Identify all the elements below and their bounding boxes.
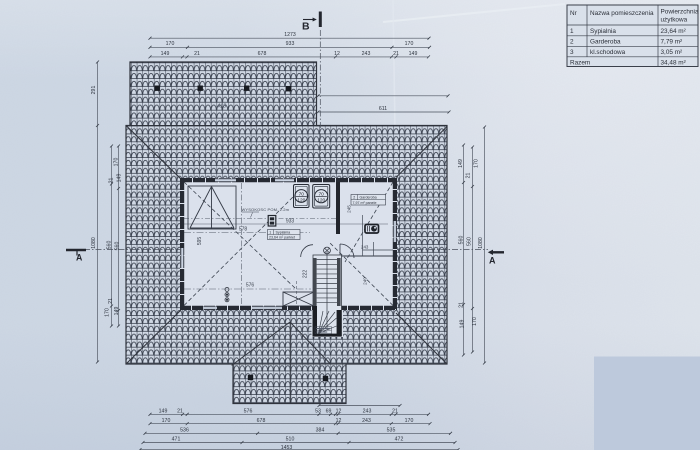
svg-text:933: 933 (286, 219, 295, 225)
svg-text:1453: 1453 (281, 445, 293, 450)
svg-text:291: 291 (91, 86, 97, 95)
svg-text:1080: 1080 (91, 237, 97, 249)
svg-text:1273: 1273 (284, 32, 296, 38)
svg-text:471: 471 (172, 437, 181, 443)
svg-text:149: 149 (409, 51, 418, 57)
svg-text:933: 933 (286, 41, 295, 47)
svg-text:149: 149 (458, 159, 464, 168)
svg-text:70: 70 (299, 191, 305, 197)
svg-text:149: 149 (114, 307, 120, 316)
svg-text:249: 249 (363, 277, 368, 285)
svg-text:A: A (76, 253, 83, 263)
svg-text:kl.schodowa: kl.schodowa (590, 49, 626, 56)
svg-text:23,64 m² parkiet: 23,64 m² parkiet (269, 236, 295, 240)
svg-text:3: 3 (570, 49, 574, 56)
svg-text:170: 170 (405, 41, 414, 47)
svg-text:WYSOKOSC POM. 2.2m: WYSOKOSC POM. 2.2m (242, 207, 290, 212)
svg-text:678: 678 (257, 418, 266, 424)
svg-text:34,48 m²: 34,48 m² (661, 59, 686, 66)
svg-text:418: 418 (217, 104, 227, 110)
svg-text:7,79 m²: 7,79 m² (661, 38, 683, 45)
svg-text:170: 170 (105, 308, 111, 317)
svg-text:678: 678 (258, 51, 267, 57)
svg-text:560: 560 (467, 237, 473, 246)
svg-text:7,97 m² panele: 7,97 m² panele (353, 201, 377, 205)
svg-text:12: 12 (334, 51, 340, 57)
svg-text:21: 21 (177, 409, 183, 415)
svg-text:149: 149 (460, 320, 466, 329)
svg-text:Nr: Nr (570, 10, 578, 17)
svg-text:2: 2 (570, 38, 574, 45)
svg-text:560: 560 (115, 242, 121, 251)
svg-text:222: 222 (303, 270, 309, 279)
svg-text:535: 535 (387, 427, 396, 433)
svg-text:12: 12 (336, 418, 342, 424)
svg-text:243: 243 (361, 245, 369, 250)
svg-text:595: 595 (197, 237, 203, 246)
svg-text:170: 170 (474, 159, 480, 168)
svg-text:21: 21 (109, 178, 115, 184)
svg-text:149: 149 (159, 409, 168, 415)
svg-text:560: 560 (107, 241, 113, 250)
svg-text:536: 536 (180, 427, 189, 433)
svg-text:21: 21 (194, 51, 200, 57)
svg-text:21: 21 (393, 51, 399, 57)
svg-text:611: 611 (379, 106, 387, 112)
svg-text:1: 1 (570, 28, 574, 35)
svg-text:Powierzchnia: Powierzchnia (661, 9, 699, 16)
svg-text:170: 170 (405, 418, 414, 424)
svg-text:3,05 m²: 3,05 m² (661, 49, 683, 56)
svg-text:21: 21 (392, 409, 398, 415)
svg-text:69: 69 (326, 409, 332, 415)
svg-text:21: 21 (466, 173, 472, 179)
svg-text:21: 21 (459, 302, 465, 308)
svg-text:53: 53 (315, 409, 321, 415)
svg-text:A: A (489, 256, 496, 266)
svg-text:576: 576 (246, 283, 255, 289)
svg-text:12: 12 (336, 409, 342, 415)
svg-text:21: 21 (108, 298, 114, 304)
svg-text:149: 149 (161, 51, 170, 57)
svg-text:120: 120 (317, 198, 325, 204)
svg-text:560: 560 (459, 236, 465, 245)
svg-text:170: 170 (166, 41, 175, 47)
svg-text:149: 149 (117, 174, 123, 183)
svg-text:2: 2 (353, 196, 355, 200)
svg-text:Sypialnia: Sypialnia (590, 28, 616, 35)
svg-text:510: 510 (286, 437, 295, 443)
svg-text:120: 120 (297, 197, 305, 203)
svg-text:1080: 1080 (478, 237, 484, 249)
svg-text:Garderoba: Garderoba (360, 196, 377, 200)
svg-text:Razem: Razem (570, 59, 590, 66)
svg-text:576: 576 (244, 409, 253, 415)
svg-text:Garderoba: Garderoba (590, 38, 621, 45)
svg-text:170: 170 (162, 418, 171, 424)
svg-text:1: 1 (269, 231, 271, 235)
svg-text:23,64 m²: 23,64 m² (661, 28, 686, 35)
svg-text:170: 170 (472, 317, 478, 326)
svg-text:384: 384 (316, 427, 325, 433)
svg-text:użytkowa: użytkowa (661, 17, 688, 24)
svg-text:578: 578 (239, 227, 248, 233)
svg-text:Sypialnia: Sypialnia (276, 231, 291, 235)
svg-text:245: 245 (347, 205, 352, 213)
svg-text:243: 243 (363, 409, 372, 415)
svg-text:70: 70 (319, 192, 325, 198)
svg-text:170: 170 (114, 158, 120, 167)
svg-text:472: 472 (395, 437, 404, 443)
svg-text:243: 243 (362, 418, 371, 424)
svg-text:243: 243 (362, 51, 371, 57)
svg-text:Nazwa pomieszczenia: Nazwa pomieszczenia (590, 10, 654, 17)
svg-text:B: B (302, 21, 310, 33)
